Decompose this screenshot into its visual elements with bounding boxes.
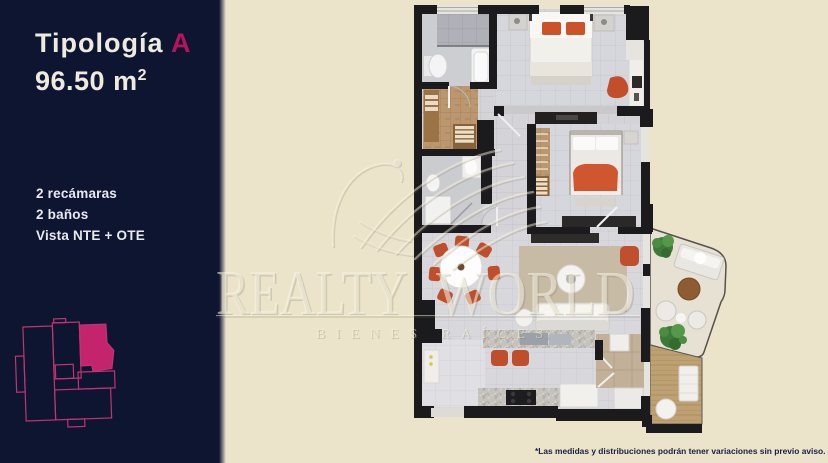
svg-text:BIENES RAÍCES: BIENES RAÍCES bbox=[316, 325, 554, 342]
svg-text:REALTY: REALTY bbox=[216, 258, 407, 328]
